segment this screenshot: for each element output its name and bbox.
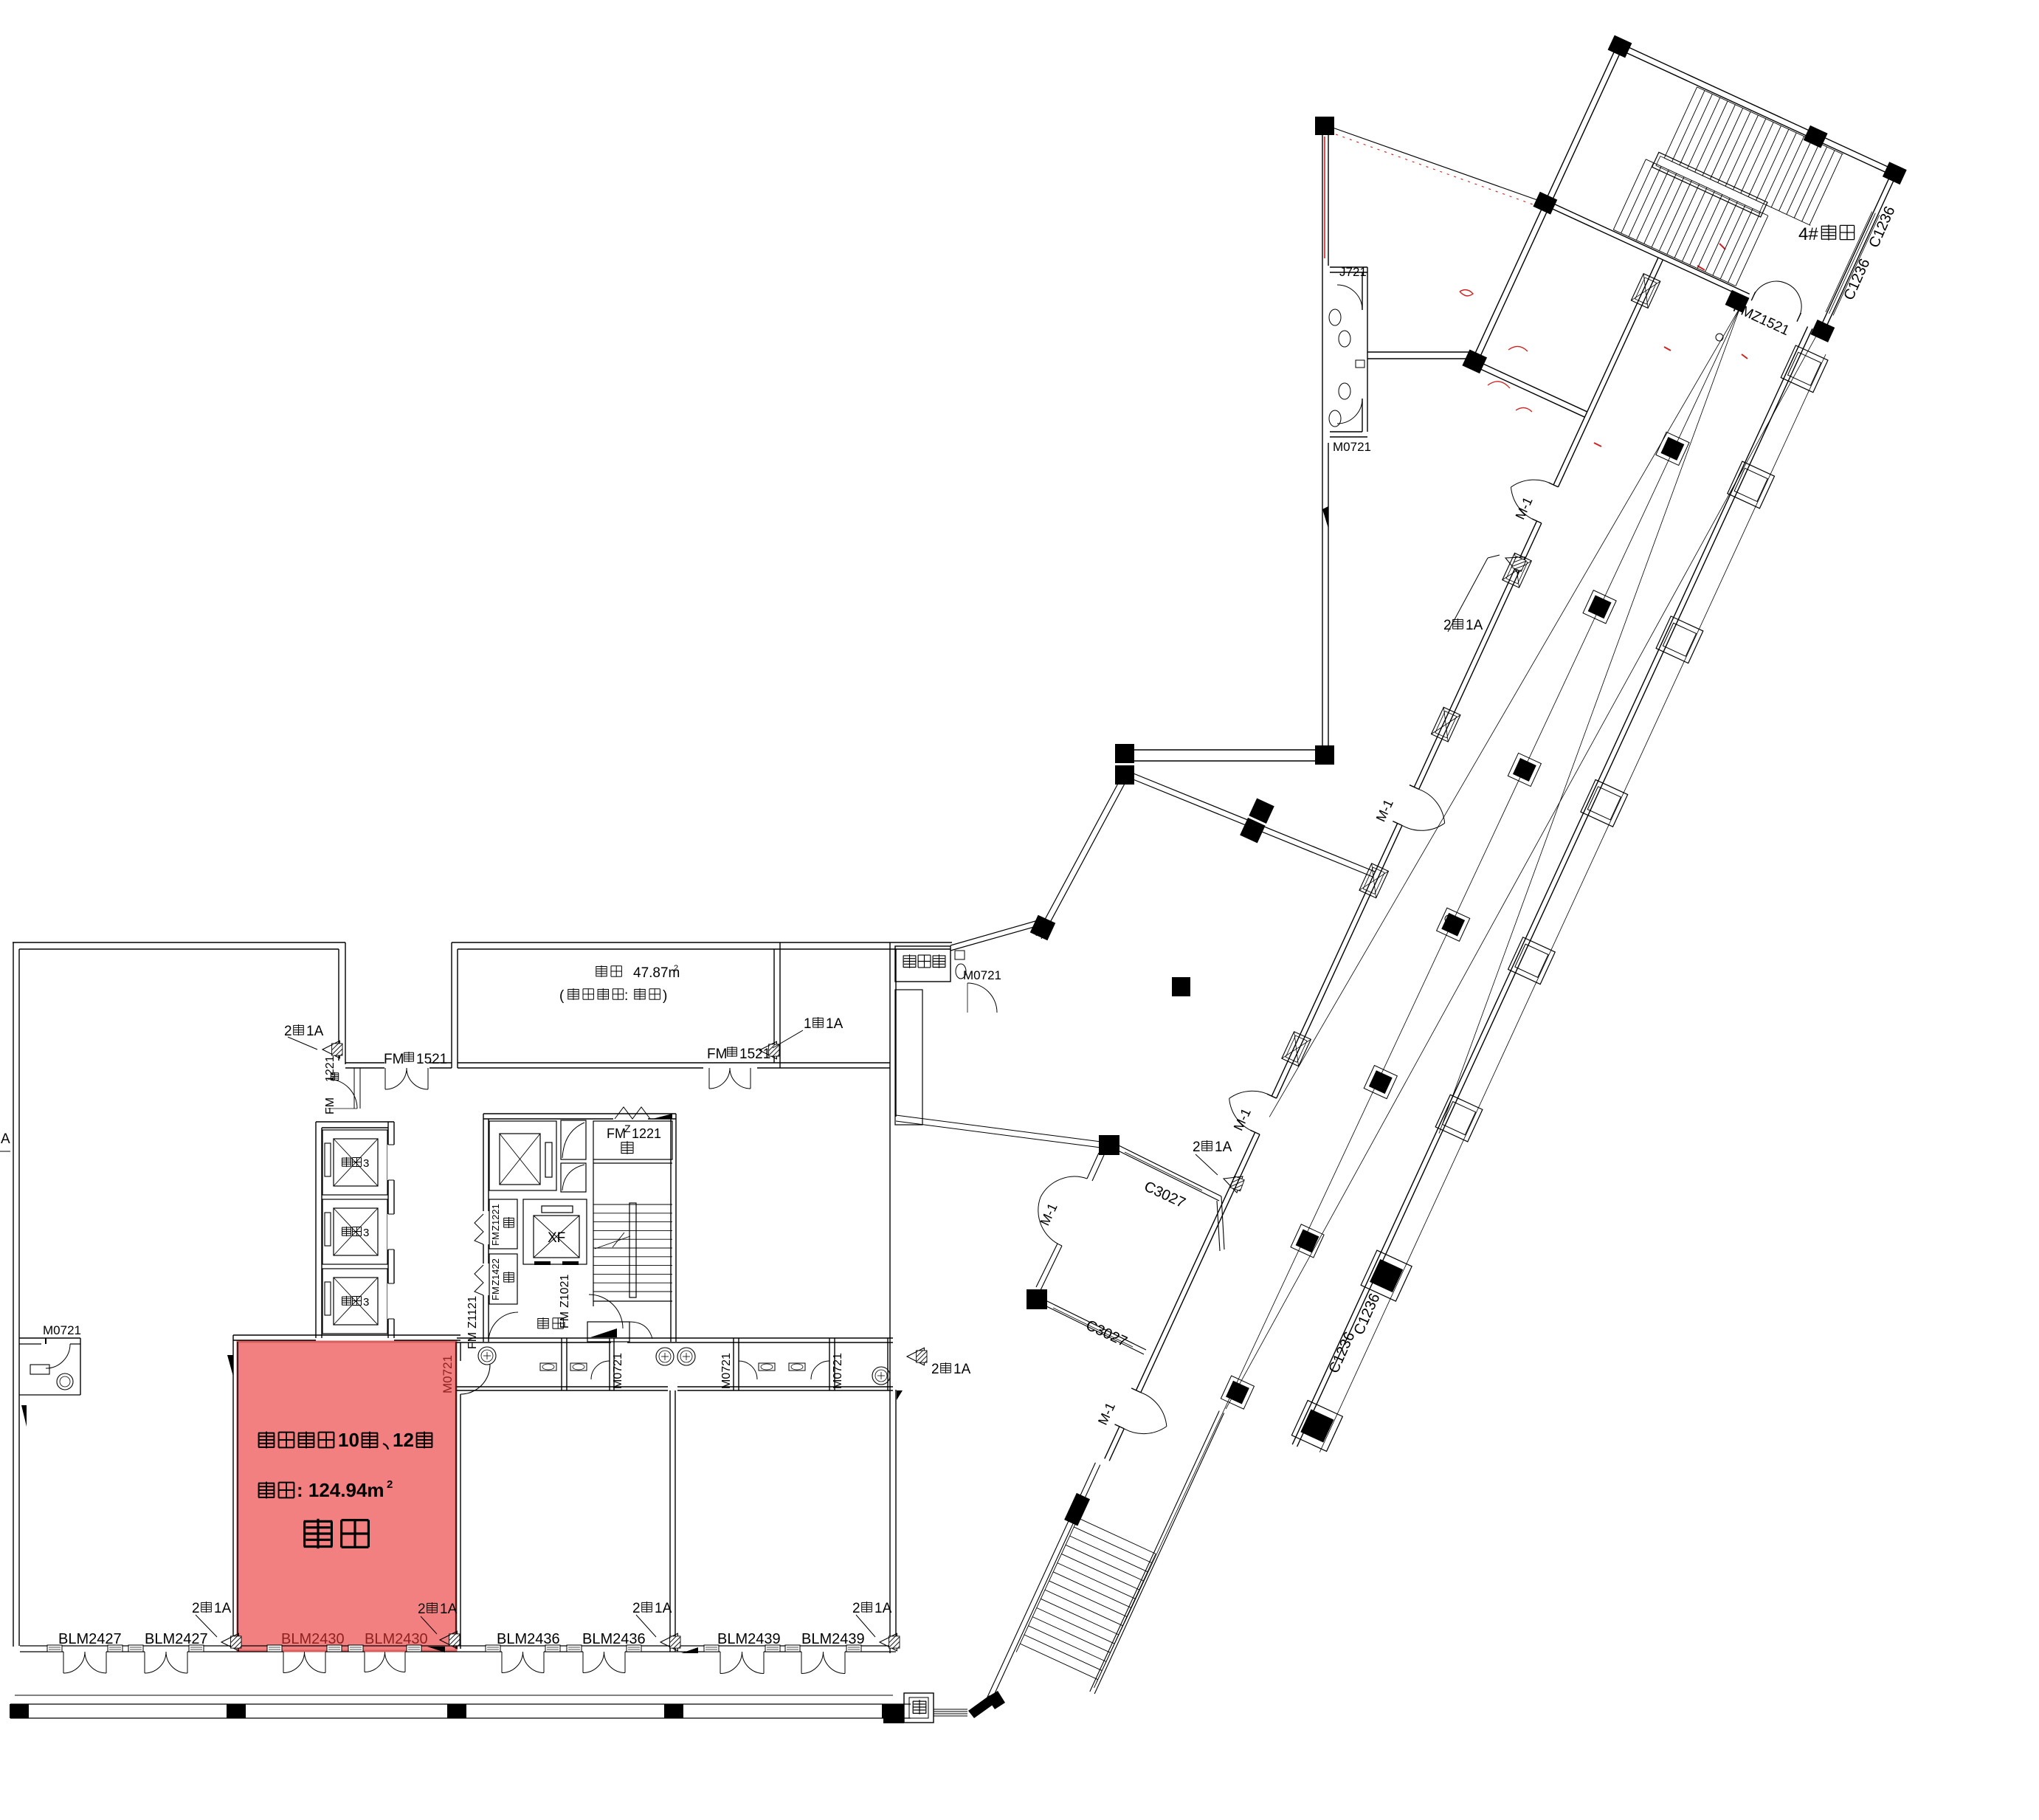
svg-text:1221: 1221 [324,1055,337,1082]
svg-text:XF: XF [548,1230,565,1246]
svg-text:FM: FM [490,1232,501,1246]
svg-text:1A: 1A [1466,618,1483,633]
svg-text:2: 2 [387,1478,393,1491]
svg-text:FM: FM [559,1311,571,1328]
svg-text:FM: FM [607,1126,626,1141]
svg-text:1A: 1A [826,1016,843,1032]
svg-text:1A: 1A [953,1362,971,1377]
svg-text:Z1221: Z1221 [490,1204,501,1231]
svg-text:1A: 1A [874,1601,892,1616]
svg-text:1A: 1A [440,1602,458,1617]
svg-text:2: 2 [192,1601,200,1616]
svg-text:Z1422: Z1422 [490,1258,501,1286]
svg-text:1221: 1221 [632,1126,661,1141]
svg-text:2: 2 [1193,1140,1201,1155]
svg-text:FM: FM [707,1047,727,1062]
svg-text:10: 10 [338,1429,359,1451]
svg-text:M0721: M0721 [963,968,1001,982]
svg-text:A: A [1,1131,10,1147]
svg-text:FM: FM [490,1286,501,1300]
svg-text:BLM2427: BLM2427 [58,1631,122,1647]
svg-text:FM: FM [466,1332,479,1349]
svg-text:BLM2436: BLM2436 [582,1631,646,1647]
svg-text:M0721: M0721 [612,1353,624,1389]
svg-text:1A: 1A [214,1601,232,1616]
svg-text::: : [624,988,628,1004]
svg-text:Z: Z [624,1123,631,1134]
svg-text:47.87m: 47.87m [633,965,680,981]
svg-text:1521: 1521 [739,1047,770,1062]
svg-text:3: 3 [363,1227,369,1239]
svg-text:3: 3 [363,1157,369,1170]
svg-text:2: 2 [1443,618,1452,633]
svg-text:BLM2427: BLM2427 [145,1631,208,1647]
svg-text:1: 1 [804,1016,812,1032]
svg-text:3: 3 [363,1296,369,1309]
svg-text:BLM2439: BLM2439 [717,1631,781,1647]
svg-text:(: ( [559,988,565,1004]
svg-text:2: 2 [674,964,678,973]
svg-text:: 124.94m: : 124.94m [297,1479,384,1501]
svg-text:FM: FM [384,1052,404,1067]
svg-text:BLM2439: BLM2439 [801,1631,865,1647]
svg-text:2: 2 [852,1601,860,1616]
svg-text:1521: 1521 [416,1052,447,1067]
svg-text:1A: 1A [306,1024,324,1039]
svg-text:M0721: M0721 [832,1353,844,1389]
svg-text:M0721: M0721 [720,1353,733,1389]
svg-text:M0721: M0721 [1333,440,1371,454]
svg-text:2: 2 [418,1602,426,1617]
svg-text:): ) [663,988,667,1004]
svg-text:1A: 1A [655,1601,672,1616]
svg-text:2: 2 [931,1362,939,1377]
svg-text:Z1121: Z1121 [466,1296,479,1328]
svg-text:1A: 1A [1215,1140,1232,1155]
svg-text:Z1021: Z1021 [559,1275,571,1308]
svg-text:FM: FM [324,1097,337,1114]
svg-text:J721: J721 [1339,265,1367,279]
svg-text:12: 12 [393,1429,414,1451]
svg-text:M0721: M0721 [441,1355,455,1393]
svg-text:4#: 4# [1798,224,1818,244]
svg-text:M0721: M0721 [43,1323,81,1337]
svg-text:2: 2 [632,1601,641,1616]
svg-text:BLM2436: BLM2436 [497,1631,560,1647]
